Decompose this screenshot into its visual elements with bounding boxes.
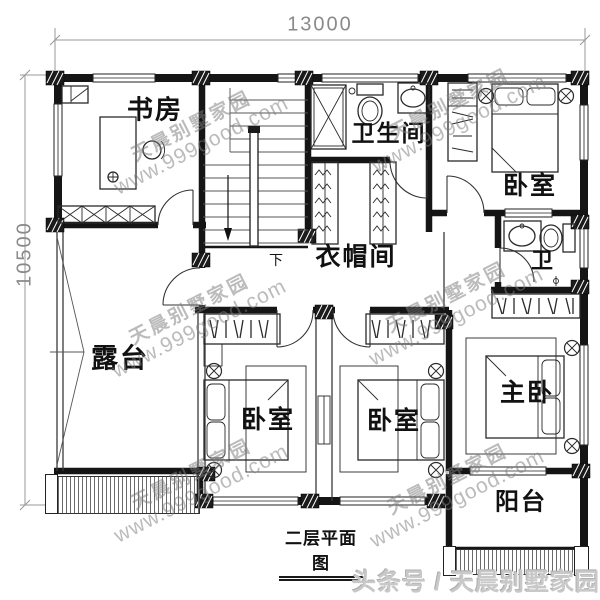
- shower-icon: [311, 85, 346, 149]
- room-label-bedroom-top-right: 卧室: [503, 166, 557, 202]
- room-label-cloakroom: 衣帽间: [315, 237, 396, 273]
- ceiling-lamp-icon: [559, 89, 574, 104]
- low-cabinet-icon: [58, 206, 155, 223]
- railing-post: [45, 474, 58, 514]
- corner-cabinet-icon: [62, 86, 88, 103]
- ceiling-lamp-icon: [429, 364, 444, 379]
- ceiling-lamp-icon: [565, 439, 580, 454]
- footer-watermark: 头条号 / 天晨别墅家园: [352, 562, 600, 597]
- floor-drain-icon: [349, 88, 355, 94]
- plan-caption: 二层平面图: [279, 524, 363, 581]
- dimension-left-value: 10500: [14, 221, 37, 287]
- room-label-bedroom-bottom-middle: 卧室: [367, 401, 421, 437]
- ceiling-lamp-icon: [565, 341, 580, 356]
- floor-plan-page: 13000 10500 书房 卫生间 卧室 衣帽间 卫 露台 卧室 卧室 主卧 …: [0, 0, 600, 600]
- room-label-master-bedroom: 主卧: [500, 373, 554, 409]
- room-label-study: 书房: [127, 90, 183, 127]
- stairs-down-arrow-icon: [224, 175, 232, 241]
- dimension-top-value: 13000: [287, 14, 353, 37]
- light-shaft: [318, 396, 330, 444]
- terrace-slope-lines: [50, 237, 84, 465]
- faucet-icon: [554, 276, 559, 286]
